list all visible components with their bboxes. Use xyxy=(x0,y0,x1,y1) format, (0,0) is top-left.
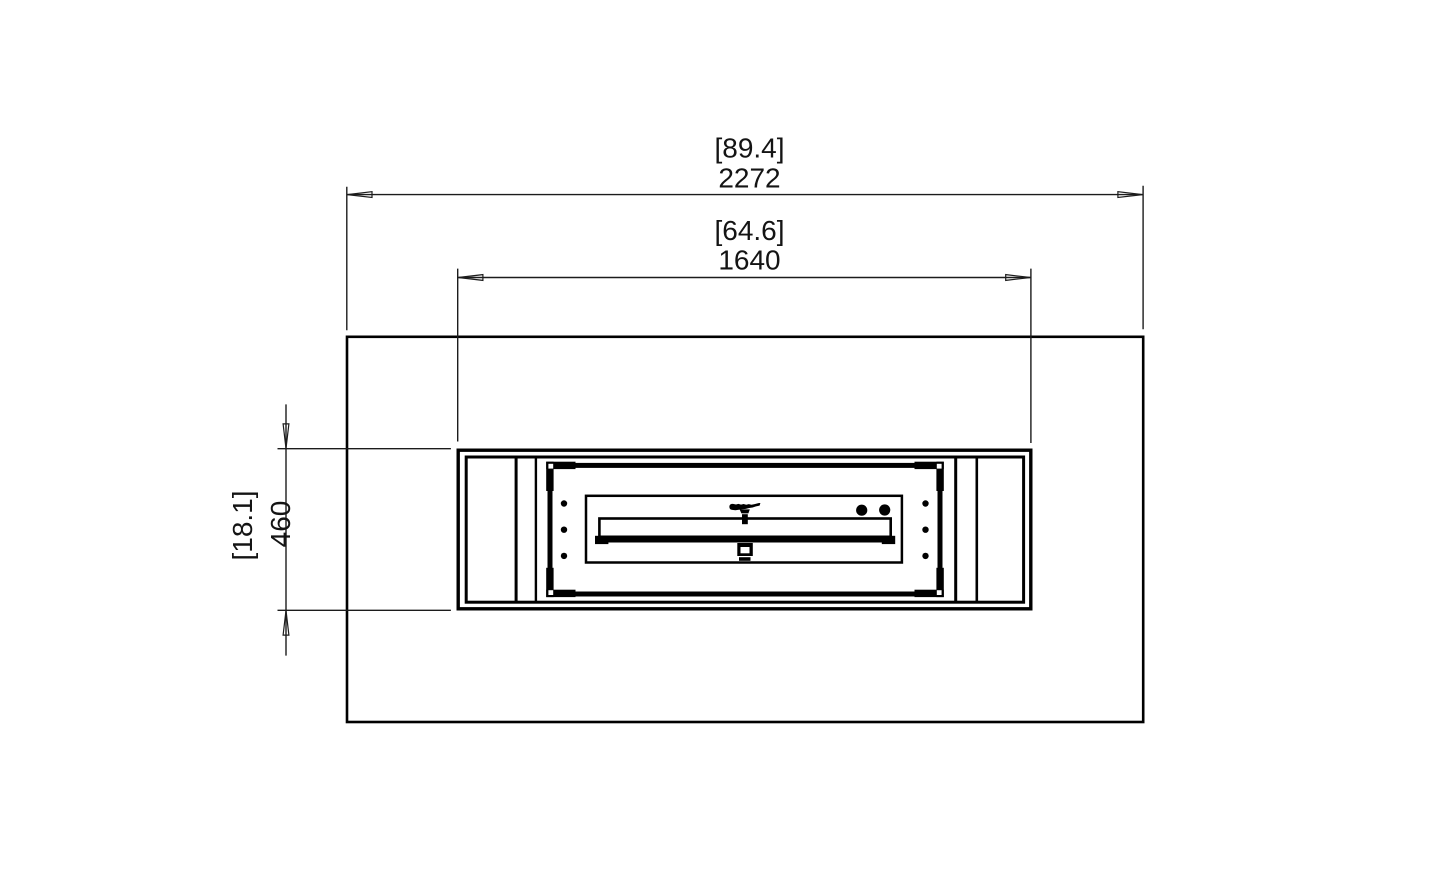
svg-text:[89.4]: [89.4] xyxy=(714,132,784,163)
svg-text:2272: 2272 xyxy=(718,162,780,193)
svg-text:1640: 1640 xyxy=(718,244,780,275)
svg-text:460: 460 xyxy=(265,501,296,548)
svg-text:[18.1]: [18.1] xyxy=(227,490,258,560)
svg-text:[64.6]: [64.6] xyxy=(714,215,784,246)
